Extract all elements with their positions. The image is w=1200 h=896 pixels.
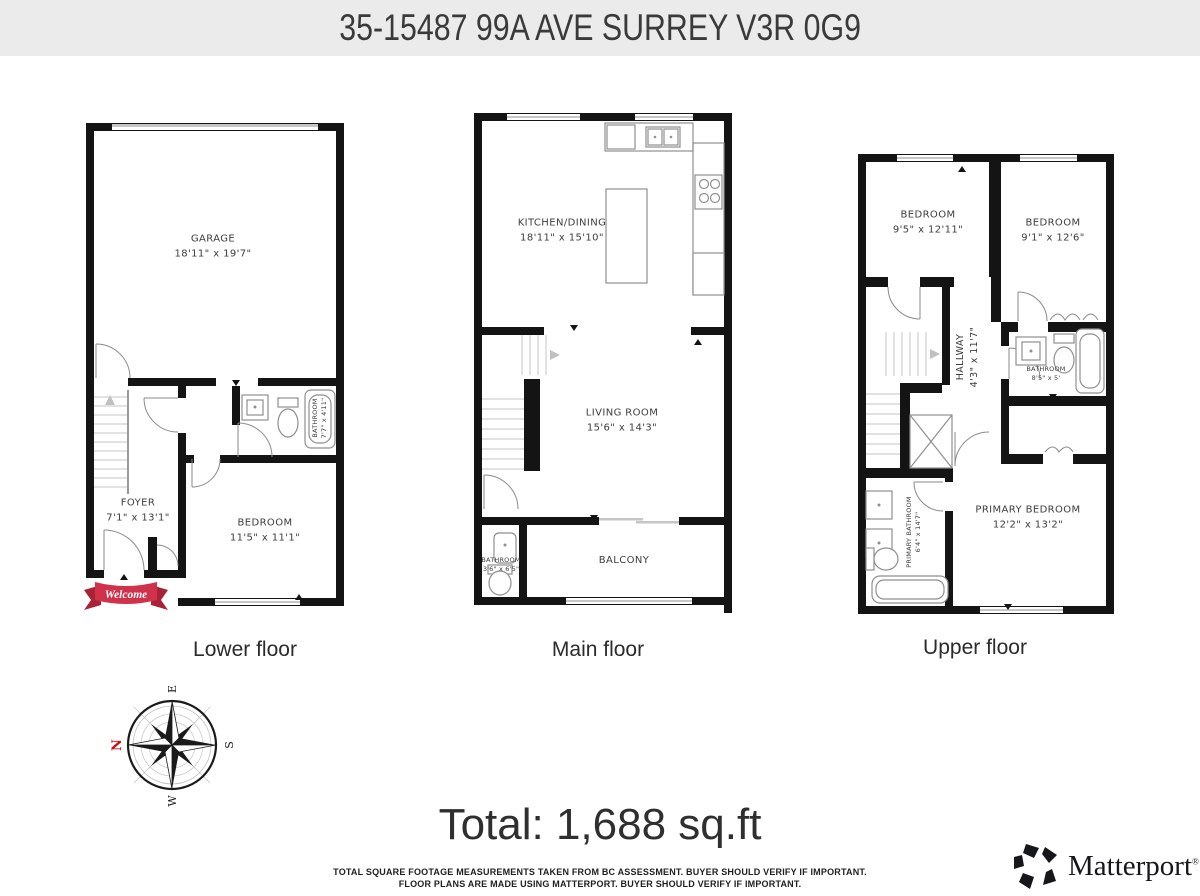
room-dims: 9'1" x 12'6" — [1021, 231, 1085, 246]
room-label-bedroom-right: BEDROOM 9'1" x 12'6" — [1021, 217, 1085, 246]
room-name: LIVING ROOM — [586, 407, 658, 422]
room-name: BALCONY — [599, 554, 650, 569]
room-label-bathroom: BATHROOM 7'7" x 4'11" — [311, 398, 329, 439]
closet-x — [910, 415, 952, 468]
room-name: FOYER — [106, 497, 170, 512]
upper-floor-plan: BEDROOM 9'5" x 12'11" BEDROOM 9'1" x 12'… — [858, 154, 1114, 614]
room-dims: 3'6" x 6'5" — [481, 565, 520, 574]
header-bar: 35-15487 99A AVE SURREY V3R 0G9 — [0, 0, 1200, 56]
room-label-bedroom: BEDROOM 11'5" x 11'1" — [230, 517, 300, 546]
sliding-door — [599, 518, 643, 521]
stairs — [482, 335, 560, 469]
room-dims: 7'1" x 13'1" — [106, 511, 170, 526]
room-dims: 4'3" x 11'7" — [968, 327, 982, 388]
room-label-primary-bedroom: PRIMARY BEDROOM 12'2" x 13'2" — [975, 504, 1080, 533]
room-label-kitchen-dining: KITCHEN/DINING 18'11" x 15'10" — [518, 217, 607, 246]
door-arcs — [484, 475, 518, 509]
stairs — [94, 390, 129, 494]
welcome-banner: Welcome — [84, 574, 168, 614]
main-floor-drawing — [474, 113, 732, 613]
welcome-ribbon: Welcome — [84, 574, 168, 614]
room-label-balcony: BALCONY — [599, 554, 650, 569]
brand-name: Matterport — [1068, 850, 1192, 882]
bathtub-icon — [872, 576, 948, 603]
room-label-primary-bathroom: PRIMARY BATHROOM 6'4" x 14'7" — [905, 496, 923, 567]
room-name: GARAGE — [174, 233, 251, 248]
compass-drawing: N E S W — [104, 677, 240, 813]
room-name: PRIMARY BATHROOM — [905, 496, 914, 567]
room-label-hallway: HALLWAY 4'3" x 11'7" — [954, 327, 982, 388]
stairs-arrow — [550, 350, 560, 360]
room-dims: 12'2" x 13'2" — [975, 518, 1080, 533]
room-dims: 18'11" x 15'10" — [518, 231, 607, 246]
room-dims: 9'5" x 12'11" — [893, 223, 963, 238]
room-name: PRIMARY BEDROOM — [975, 504, 1080, 519]
room-name: BATHROOM — [1026, 365, 1065, 374]
room-label-living-room: LIVING ROOM 15'6" x 14'3" — [586, 407, 658, 436]
fridge-icon — [607, 125, 635, 149]
room-dims: 15'6" x 14'3" — [586, 421, 658, 436]
room-name: HALLWAY — [954, 327, 968, 388]
walls — [86, 123, 344, 606]
cabinet — [693, 253, 724, 295]
lower-floor-drawing — [86, 115, 344, 613]
floor-label-lower: Lower floor — [193, 638, 297, 662]
main-floor-plan: KITCHEN/DINING 18'11" x 15'10" LIVING RO… — [474, 113, 732, 613]
floor-label-upper: Upper floor — [923, 636, 1027, 660]
room-dims: 11'5" x 11'1" — [230, 531, 300, 546]
registered-mark: ® — [1192, 856, 1199, 866]
compass-south-label: S — [223, 741, 236, 749]
matterport-wordmark: Matterport® — [1068, 850, 1199, 883]
room-label-bathroom: BATHROOM 3'6" x 6'5" — [481, 556, 520, 574]
compass-rose: N E S W — [104, 677, 240, 813]
room-label-bedroom-left: BEDROOM 9'5" x 12'11" — [893, 209, 963, 238]
room-name: BEDROOM — [893, 209, 963, 224]
toilet-icon — [278, 398, 298, 437]
room-label-garage: GARAGE 18'11" x 19'7" — [174, 233, 251, 262]
compass-north-label: N — [110, 739, 125, 751]
kitchen-fixtures — [605, 123, 724, 295]
room-name: BATHROOM — [311, 398, 320, 439]
floorplan-page: 35-15487 99A AVE SURREY V3R 0G9 — [0, 0, 1200, 896]
room-name: BEDROOM — [1021, 217, 1085, 232]
room-name: KITCHEN/DINING — [518, 217, 607, 232]
welcome-label: Welcome — [105, 589, 148, 601]
stove-icon — [695, 175, 722, 209]
room-name: BATHROOM — [481, 556, 520, 565]
matterport-logo-icon — [1012, 842, 1060, 890]
sink-icon — [866, 491, 892, 519]
lower-floor-plan: GARAGE 18'11" x 19'7" FOYER 7'1" x 13'1"… — [86, 115, 344, 613]
room-label-bathroom: BATHROOM 8'5" x 5' — [1026, 365, 1065, 383]
page-title: 35-15487 99A AVE SURREY V3R 0G9 — [339, 7, 861, 49]
bathroom-fixtures — [1016, 329, 1104, 393]
room-label-foyer: FOYER 7'1" x 13'1" — [106, 497, 170, 526]
compass-east-label: E — [166, 685, 179, 693]
room-dims: 18'11" x 19'7" — [174, 247, 251, 262]
toilet-icon — [866, 548, 898, 570]
room-dims: 7'7" x 4'11" — [320, 398, 329, 439]
kitchen-island — [606, 189, 647, 283]
room-dims: 6'4" x 14'7" — [914, 496, 923, 567]
floor-label-main: Main floor — [552, 638, 644, 662]
room-dims: 8'5" x 5' — [1026, 374, 1065, 383]
stairs-arrow — [930, 349, 940, 359]
matterport-brand: Matterport® — [1012, 842, 1199, 890]
sink-icon — [1016, 337, 1046, 365]
room-name: BEDROOM — [230, 517, 300, 532]
bathtub-icon — [1076, 329, 1104, 393]
double-sink-icon — [646, 127, 680, 147]
